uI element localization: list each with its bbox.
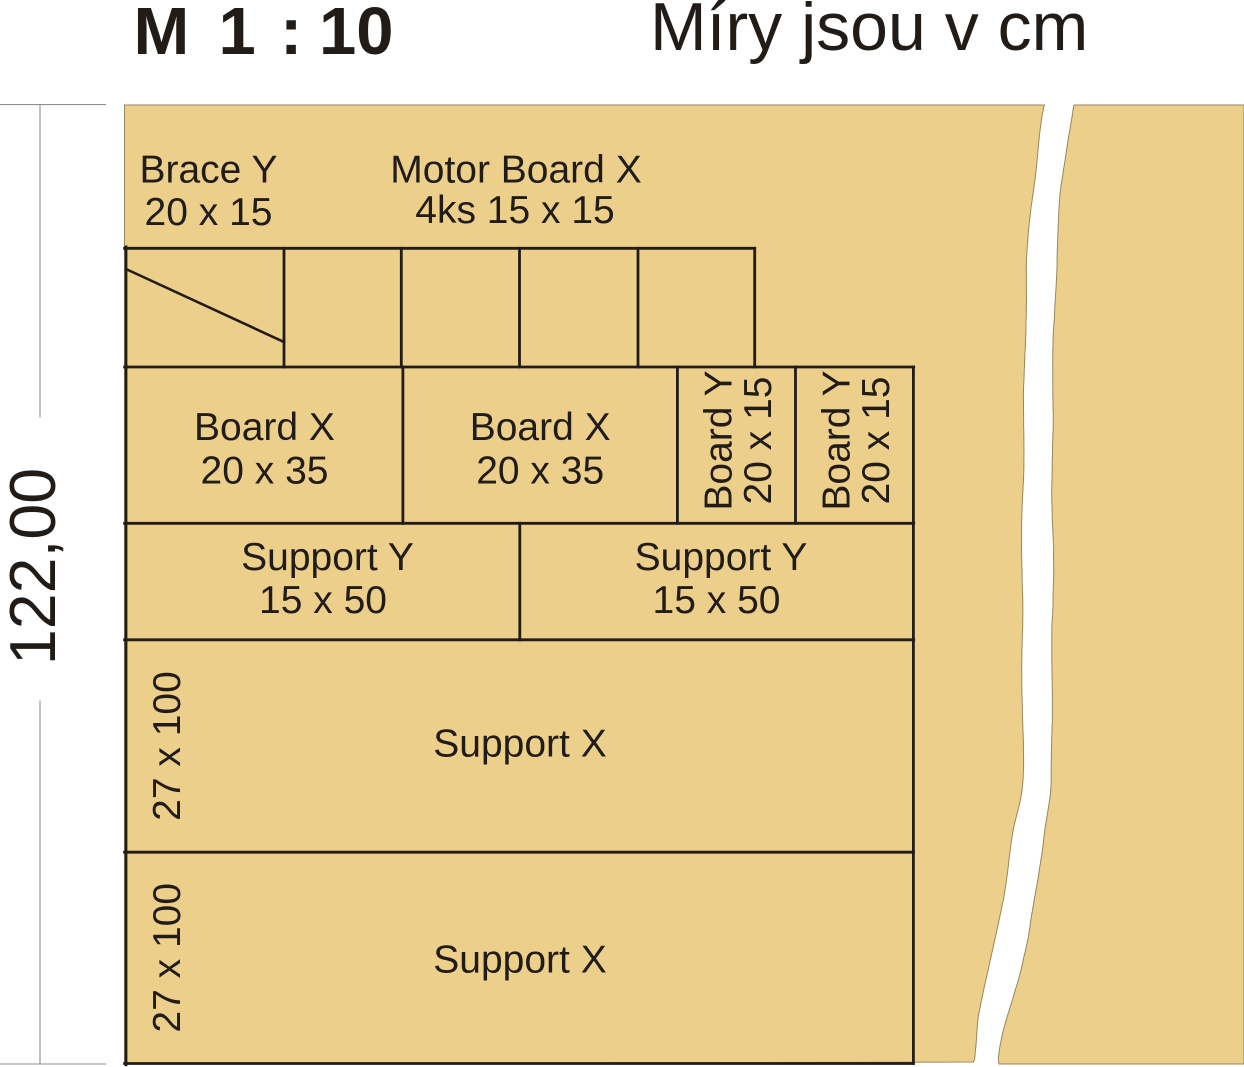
svg-text:27 x 100: 27 x 100 (146, 883, 189, 1033)
svg-text:Board X: Board X (194, 406, 335, 449)
svg-text:Míry jsou v cm: Míry jsou v cm (650, 0, 1088, 65)
svg-text:Board X: Board X (470, 406, 611, 449)
svg-text:20 x 35: 20 x 35 (201, 450, 329, 493)
svg-text:20 x 35: 20 x 35 (476, 450, 604, 493)
svg-text:4ks 15 x 15: 4ks 15 x 15 (415, 189, 614, 232)
svg-text:Support Y: Support Y (241, 536, 414, 579)
svg-text:15 x 50: 15 x 50 (653, 579, 781, 622)
svg-text:10: 10 (319, 0, 394, 69)
svg-text:20 x 15: 20 x 15 (855, 377, 898, 505)
svg-text:Board Y: Board Y (698, 370, 741, 510)
svg-text:Support X: Support X (433, 723, 606, 766)
svg-text:M: M (134, 0, 190, 69)
svg-text:27 x 100: 27 x 100 (146, 671, 189, 821)
svg-text:Support Y: Support Y (635, 536, 808, 579)
svg-text:Support X: Support X (433, 939, 606, 982)
svg-text:1: 1 (219, 0, 256, 69)
svg-text:15 x 50: 15 x 50 (259, 579, 387, 622)
svg-text::: : (280, 0, 302, 69)
svg-text:20 x 15: 20 x 15 (737, 377, 780, 505)
svg-text:122,00: 122,00 (0, 468, 69, 665)
svg-text:Motor Board X: Motor Board X (390, 148, 641, 191)
svg-text:Brace Y: Brace Y (139, 148, 277, 191)
svg-text:Board Y: Board Y (816, 370, 859, 510)
svg-text:20 x 15: 20 x 15 (145, 191, 273, 234)
